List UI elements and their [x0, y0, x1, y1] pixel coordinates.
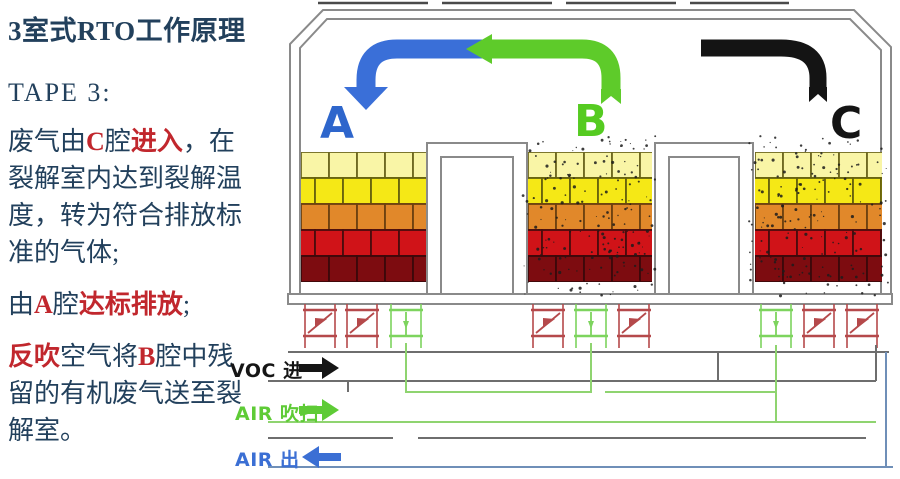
paragraph: 由A腔达标排放;	[8, 286, 258, 323]
air-out-piping	[268, 352, 893, 467]
red-valve	[531, 304, 565, 348]
air-out-label: AIR 出	[235, 445, 300, 472]
paragraph: 反吹空气将B腔中残留的有机废气送至裂解室。	[8, 338, 258, 449]
flow-arrow-black-from-C	[701, 48, 827, 102]
ceramic-bed-b	[514, 152, 668, 282]
red-valve	[303, 304, 337, 348]
air-out-arrow-icon	[302, 446, 341, 468]
highlighted-text: C	[86, 127, 105, 156]
highlighted-text: 进入	[131, 127, 183, 156]
tape-step-label: TAPE 3:	[8, 78, 258, 108]
chamber-label-b: B	[574, 100, 608, 144]
red-valve	[617, 304, 651, 348]
rto-diagram-page: 3室式RTO工作原理 TAPE 3: 废气由C腔进入，在裂解室内达到裂解温度，转…	[0, 0, 900, 479]
voc-in-arrow-icon	[299, 357, 339, 379]
valves-c	[759, 304, 879, 348]
ceramic-bed-a	[287, 152, 441, 282]
highlighted-text: 达标排放	[79, 290, 183, 319]
air-purge-label: AIR 吹扫	[235, 399, 319, 426]
flow-arrow-blue-to-A	[344, 49, 497, 110]
description-paragraphs: 废气由C腔进入，在裂解室内达到裂解温度，转为符合排放标准的气体;由A腔达标排放;…	[8, 123, 258, 449]
purge-air-piping	[268, 343, 876, 422]
red-valve	[845, 304, 879, 348]
highlighted-text: 反吹	[8, 342, 60, 371]
green-valve	[759, 304, 793, 348]
ceramic-beds-and-valves	[287, 135, 900, 348]
flow-arrow-green-from-B	[466, 34, 621, 104]
green-valve	[389, 304, 423, 348]
page-title: 3室式RTO工作原理	[8, 14, 258, 48]
valves-b	[531, 304, 651, 348]
chamber-label-a: A	[320, 102, 354, 146]
red-valve	[802, 304, 836, 348]
vessel-bottom-wall	[288, 294, 892, 304]
chamber-label-c: C	[830, 102, 862, 146]
red-valve	[345, 304, 379, 348]
highlighted-text: A	[34, 290, 53, 319]
ceramic-bed-c	[741, 152, 900, 282]
paragraph: 废气由C腔进入，在裂解室内达到裂解温度，转为符合排放标准的气体;	[8, 123, 258, 271]
text-panel: 3室式RTO工作原理 TAPE 3: 废气由C腔进入，在裂解室内达到裂解温度，转…	[8, 14, 258, 449]
valves-a	[303, 304, 423, 348]
highlighted-text: B	[138, 342, 155, 371]
voc-in-label: VOC 进	[230, 356, 303, 383]
green-valve	[574, 304, 608, 348]
